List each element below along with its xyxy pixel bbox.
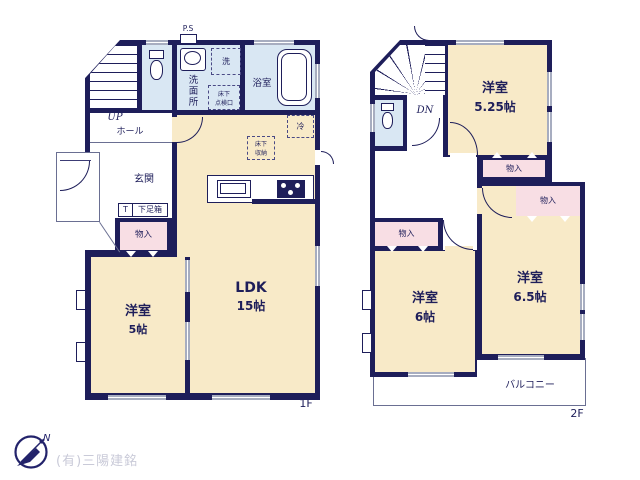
window bbox=[254, 40, 294, 45]
closet-525-text: 物入 bbox=[506, 164, 522, 173]
dn-label: DN bbox=[408, 105, 442, 117]
ps-niche bbox=[180, 34, 197, 44]
room525-size-label: 5.25帖 bbox=[455, 101, 535, 115]
hall-label: ホール bbox=[98, 126, 162, 138]
window bbox=[547, 72, 552, 106]
toilet-tank bbox=[381, 103, 394, 111]
closet-1f-text: 物入 bbox=[135, 231, 152, 241]
side-door-arc bbox=[321, 151, 334, 164]
closet-door-mark bbox=[387, 246, 397, 252]
toilet-tank bbox=[149, 50, 164, 59]
fridge-label: 冷 bbox=[297, 121, 305, 132]
up-label: UP bbox=[98, 112, 132, 124]
entrance-text: 玄関 bbox=[134, 174, 154, 186]
ps-text: P.S bbox=[183, 25, 194, 34]
window bbox=[146, 40, 168, 45]
room5-name-text: 洋室 bbox=[125, 305, 151, 320]
room6-size-label: 6帖 bbox=[385, 311, 465, 325]
closet-6-text: 物入 bbox=[399, 229, 415, 238]
casement-window bbox=[362, 333, 372, 353]
balcony-text: バルコニー bbox=[505, 380, 555, 392]
side-door-gap bbox=[315, 150, 320, 165]
toilet-fixture-2f bbox=[377, 103, 401, 133]
casement-window bbox=[362, 290, 372, 310]
fridge-box: 冷 bbox=[287, 115, 314, 138]
toilet-bowl bbox=[382, 112, 393, 129]
ldk-name-label: LDK bbox=[215, 280, 287, 297]
sink-washroom bbox=[180, 48, 206, 71]
company-name: (有)三陽建銘 bbox=[56, 450, 226, 468]
casement-window bbox=[76, 290, 86, 310]
t-box: T bbox=[118, 203, 133, 217]
wall-patch bbox=[85, 250, 117, 257]
underfloor-hatch-label: 床下 点検口 bbox=[215, 89, 233, 107]
stair-top-door-arc bbox=[414, 26, 429, 41]
closet-door-mark bbox=[527, 152, 537, 158]
ldk-room-lower bbox=[190, 257, 315, 393]
floor2-label: 2F bbox=[563, 408, 591, 421]
closet-1f-label: 物入 bbox=[120, 222, 167, 250]
counter-edge bbox=[252, 199, 315, 204]
room6-name-text: 洋室 bbox=[412, 292, 438, 307]
kitchen-sink-basin bbox=[220, 183, 246, 194]
toilet-fixture-1f bbox=[144, 50, 170, 84]
closet-65-label: 物入 bbox=[516, 186, 580, 216]
sliding-door bbox=[185, 322, 190, 360]
ps-label: P.S bbox=[172, 24, 204, 34]
casement-window bbox=[76, 342, 86, 362]
bath-label: 浴室 bbox=[245, 78, 279, 90]
hall-text: ホール bbox=[116, 127, 143, 137]
washroom-label: 洗面所 bbox=[187, 73, 200, 109]
window bbox=[408, 372, 454, 377]
window bbox=[108, 395, 166, 400]
window bbox=[580, 284, 585, 310]
ldk-size-text: 15帖 bbox=[237, 300, 266, 314]
compass-n-label: N bbox=[43, 433, 51, 444]
floor1-label: 1F bbox=[292, 398, 320, 411]
t-label: T bbox=[123, 205, 128, 214]
room525-name-text: 洋室 bbox=[482, 82, 508, 97]
room65-size-label: 6.5帖 bbox=[490, 291, 570, 305]
closet-door-mark bbox=[418, 246, 428, 252]
closet-door-mark bbox=[148, 251, 158, 257]
closet-6-label: 物入 bbox=[375, 222, 438, 246]
hall-2f-b bbox=[375, 151, 443, 218]
window bbox=[370, 104, 375, 132]
stairs-2f-column bbox=[425, 45, 445, 95]
burner bbox=[295, 183, 300, 188]
up-text: UP bbox=[107, 112, 122, 124]
window bbox=[315, 64, 320, 98]
washer-label: 洗 bbox=[222, 56, 230, 67]
window bbox=[580, 314, 585, 340]
compass: N bbox=[10, 428, 56, 474]
stove bbox=[277, 180, 305, 198]
room525-name-label: 洋室 bbox=[455, 82, 535, 97]
bath-text: 浴室 bbox=[252, 79, 271, 90]
bathtub bbox=[277, 49, 312, 106]
closet-65-text: 物入 bbox=[540, 196, 556, 205]
window bbox=[498, 355, 544, 360]
room5-size-label: 5帖 bbox=[106, 324, 170, 337]
washer-box: 洗 bbox=[211, 48, 241, 75]
window bbox=[315, 246, 320, 286]
window bbox=[547, 112, 552, 142]
burner bbox=[288, 190, 293, 195]
room6-name-label: 洋室 bbox=[385, 292, 465, 307]
floor2-text: 2F bbox=[570, 408, 583, 421]
entrance-step-line bbox=[90, 142, 172, 143]
washroom-text: 洗面所 bbox=[187, 75, 200, 108]
room5-size-text: 5帖 bbox=[129, 324, 148, 337]
underfloor-storage-box: 床下 収納 bbox=[247, 136, 275, 160]
balcony-label: バルコニー bbox=[478, 379, 582, 392]
shoe-box: 下足箱 bbox=[132, 203, 168, 217]
kitchen-counter bbox=[207, 175, 314, 203]
closet-door-mark bbox=[560, 216, 570, 222]
ldk-size-label: 15帖 bbox=[215, 299, 287, 314]
room5-name-label: 洋室 bbox=[106, 305, 170, 320]
window bbox=[212, 395, 270, 400]
room525-size-text: 5.25帖 bbox=[474, 101, 516, 115]
bathtub-inner bbox=[281, 53, 307, 101]
closet-door-mark bbox=[527, 216, 537, 222]
closet-door-mark bbox=[492, 152, 502, 158]
underfloor-hatch-box: 床下 点検口 bbox=[208, 85, 240, 110]
dn-text: DN bbox=[417, 105, 434, 117]
ldk-name-text: LDK bbox=[235, 280, 266, 296]
company-text: (有)三陽建銘 bbox=[56, 450, 138, 469]
underfloor-storage-label: 床下 収納 bbox=[255, 139, 267, 157]
floorplan-canvas: 洗 床下 点検口 冷 床下 収納 T 下足箱 P.S UP ホール 玄関 物入 … bbox=[0, 0, 640, 480]
sliding-door bbox=[185, 260, 190, 292]
room65-name-label: 洋室 bbox=[490, 272, 570, 287]
closet-525-label: 物入 bbox=[483, 160, 545, 177]
room6-size-text: 6帖 bbox=[415, 311, 435, 325]
closet-door-mark bbox=[126, 251, 136, 257]
floor1-text: 1F bbox=[299, 398, 312, 411]
compass-icon: N bbox=[10, 428, 56, 474]
room65-size-text: 6.5帖 bbox=[513, 291, 546, 305]
window bbox=[456, 40, 504, 45]
shoe-box-label: 下足箱 bbox=[138, 205, 162, 214]
sink-basin bbox=[184, 51, 201, 65]
room65-door-gap bbox=[477, 188, 482, 214]
stairs-1f bbox=[90, 45, 137, 108]
room65-name-text: 洋室 bbox=[517, 272, 543, 287]
entrance-label: 玄関 bbox=[114, 173, 174, 186]
burner bbox=[281, 183, 286, 188]
toilet-bowl bbox=[150, 60, 163, 80]
